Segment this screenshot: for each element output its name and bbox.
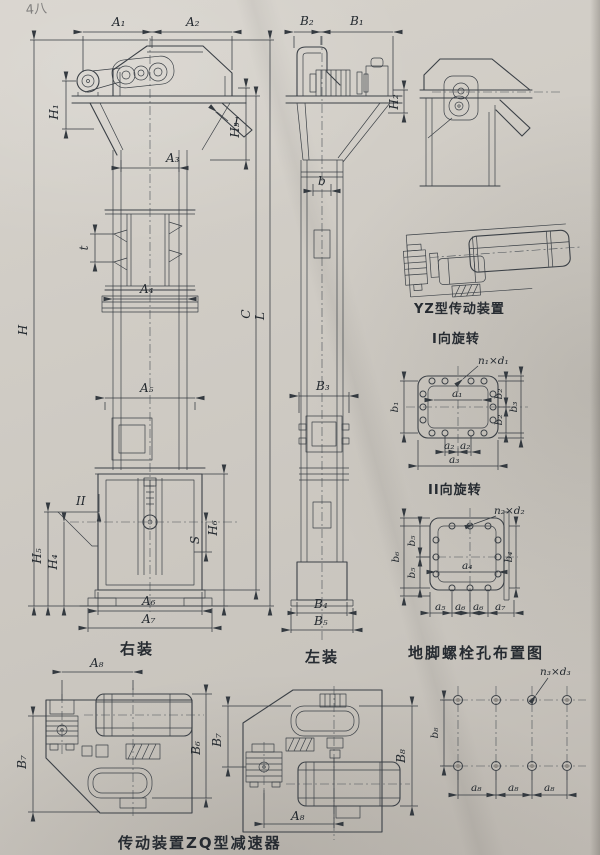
dim-b8-right: B₈ — [394, 749, 408, 764]
dim-b7-right: B₇ — [210, 733, 224, 748]
dim-s: S — [188, 536, 202, 544]
dim-a2: A₂ — [185, 15, 200, 29]
dim-h6: H₆ — [206, 520, 220, 536]
dim-b3: b₃ — [508, 402, 520, 413]
caption-zq-drive: 传动装置ZQ型减速器 — [117, 834, 282, 852]
side-view-left-install: B₂ B₁ H₂ b B₃ B₄ B₅ 左装 — [286, 14, 408, 666]
dim-a8-left: A₈ — [89, 656, 104, 670]
caption-rotation-i: I向旋转 — [432, 331, 480, 347]
dim-a5: A₅ — [139, 381, 154, 395]
dim-b1: B₁ — [349, 14, 364, 28]
dim-b7-left: B₇ — [15, 755, 29, 770]
dim-a3: A₃ — [165, 151, 180, 165]
dim-a2a: a₂ — [444, 440, 454, 452]
dim-b5a: b₅ — [406, 535, 418, 547]
dim-b2: B₂ — [299, 14, 314, 28]
head-side-view — [420, 59, 560, 186]
dim-b4: B₄ — [313, 597, 328, 611]
dim-l: L — [253, 312, 267, 321]
dim-a8c: a₈ — [544, 782, 555, 794]
dim-b1: b₁ — [389, 402, 401, 413]
dim-n3d3: n₃×d₃ — [540, 666, 571, 678]
zq-drive-right-view: B₇ B₈ A₈ — [210, 686, 418, 840]
dim-a6b: a₆ — [473, 601, 484, 613]
dim-a1: a₁ — [452, 388, 462, 400]
dim-a8a: a₈ — [471, 782, 482, 794]
side-view-dimensions: B₂ B₁ H₂ b B₃ B₄ B₅ — [291, 14, 408, 633]
dim-h2: H₂ — [387, 94, 401, 110]
dim-t: t — [77, 245, 91, 250]
dim-a6a: a₆ — [455, 601, 466, 613]
dim-a3: a₃ — [449, 454, 459, 466]
corner-note: 4八 — [25, 2, 47, 18]
dim-h: H — [16, 324, 30, 336]
section-ii-label: II — [75, 494, 86, 508]
dim-a7: a₇ — [495, 601, 506, 613]
front-view-right-install: I — [16, 15, 274, 658]
dim-b6: B₆ — [189, 741, 203, 756]
boot-section — [58, 468, 240, 606]
dim-b2a: b₂ — [493, 389, 505, 400]
dim-b: b — [318, 174, 326, 188]
elevator-drawing: 4八 I — [0, 0, 600, 855]
dim-c: C — [239, 309, 253, 318]
dim-a2b: a₂ — [460, 440, 470, 452]
dim-h5: H₅ — [30, 548, 44, 564]
caption-yz-drive: YZ型传动装置 — [413, 301, 505, 317]
dim-b8: b₈ — [429, 727, 441, 739]
bolt-plan-2: n₂×d₂ a₄ b₅ b₅ b₆ b₄ a₅ a₆ a₆ a₇ — [390, 505, 525, 617]
page-edge-shadow — [590, 0, 600, 855]
yz-drive-view — [402, 223, 582, 300]
dim-b5: B₅ — [313, 614, 328, 628]
front-view-dimensions: A₁ A₂ H₁ H₃ A₃ t A₄ A₅ — [16, 15, 274, 632]
dim-n2d2: n₂×d₂ — [494, 505, 525, 517]
dim-b3: B₃ — [315, 379, 330, 393]
grid-holes — [454, 696, 572, 771]
dim-b5b: b₅ — [406, 567, 418, 579]
dim-a8b: a₈ — [508, 782, 519, 794]
caption-right-install: 右装 — [120, 640, 154, 658]
dim-a6: A₆ — [141, 594, 156, 608]
caption-anchor-bolts: 地脚螺栓孔布置图 — [408, 644, 544, 662]
dim-a8-right: A₈ — [290, 809, 305, 823]
dim-a1: A₁ — [111, 15, 125, 29]
dim-h1: H₁ — [47, 104, 61, 120]
dim-b6: b₆ — [390, 551, 402, 563]
zq-drive-left-view: A₈ B₇ B₆ — [15, 656, 212, 818]
dim-a4: A₄ — [139, 282, 154, 296]
dim-a5: a₅ — [435, 601, 446, 613]
dim-n1d1: n₁×d₁ — [478, 355, 509, 367]
paper-page: 4八 I — [0, 0, 600, 855]
bolt-plan-1: n₁×d₁ a₁ b₁ b₂ b₂ b₃ a₂ a₂ a₃ — [389, 355, 528, 470]
dim-h3: H₃ — [228, 122, 242, 138]
dim-a7: A₇ — [141, 612, 156, 626]
dim-b4: b₄ — [503, 552, 515, 563]
dim-b2b: b₂ — [493, 415, 505, 426]
dim-a4: a₄ — [462, 560, 472, 572]
caption-rotation-ii: II向旋转 — [428, 482, 482, 498]
dim-h4: H₄ — [46, 554, 60, 570]
caption-left-install: 左装 — [304, 648, 339, 666]
anchor-bolt-grid: n₃×d₃ b₈ a₈ a₈ a₈ — [429, 666, 586, 799]
